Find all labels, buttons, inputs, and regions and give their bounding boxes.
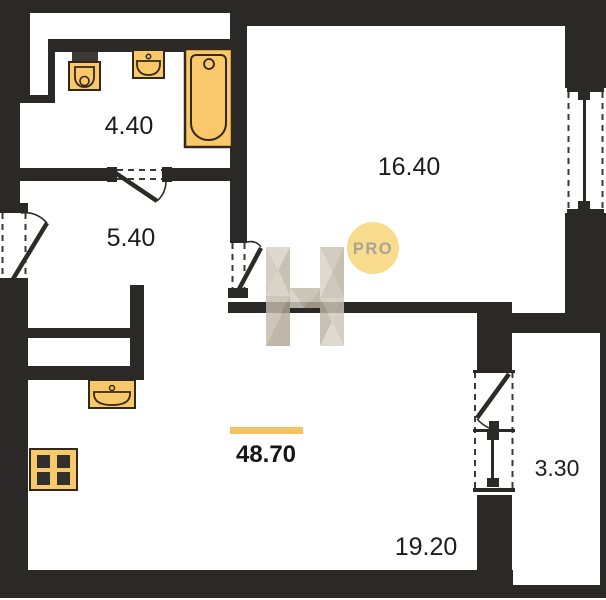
pro-badge: PRO <box>347 222 399 274</box>
bedroom-window <box>567 88 604 213</box>
living-area-label: 19.20 <box>395 533 458 561</box>
total-area: 48.70 <box>230 427 303 468</box>
stove-icon <box>30 449 77 490</box>
bathroom-door <box>114 170 166 201</box>
floor-plan: PRO 4.40 5.40 16.40 19.20 3.30 48.70 <box>0 0 606 600</box>
balcony-area-label: 3.30 <box>535 455 580 481</box>
h-logo-watermark <box>266 247 344 346</box>
bathroom-area-label: 4.40 <box>105 112 154 140</box>
sink-icon <box>133 50 164 78</box>
bathtub-icon <box>185 49 232 147</box>
total-area-label: 48.70 <box>236 441 296 468</box>
total-area-overline <box>230 427 303 434</box>
balcony-window <box>473 432 515 492</box>
entrance-door <box>3 213 48 279</box>
toilet-icon <box>69 52 100 90</box>
hallway-area-label: 5.40 <box>107 224 156 252</box>
hallway-door <box>233 242 262 291</box>
bedroom-area-label: 16.40 <box>378 153 441 181</box>
pro-badge-label: PRO <box>353 240 393 258</box>
kitchen-sink-icon <box>89 380 135 408</box>
